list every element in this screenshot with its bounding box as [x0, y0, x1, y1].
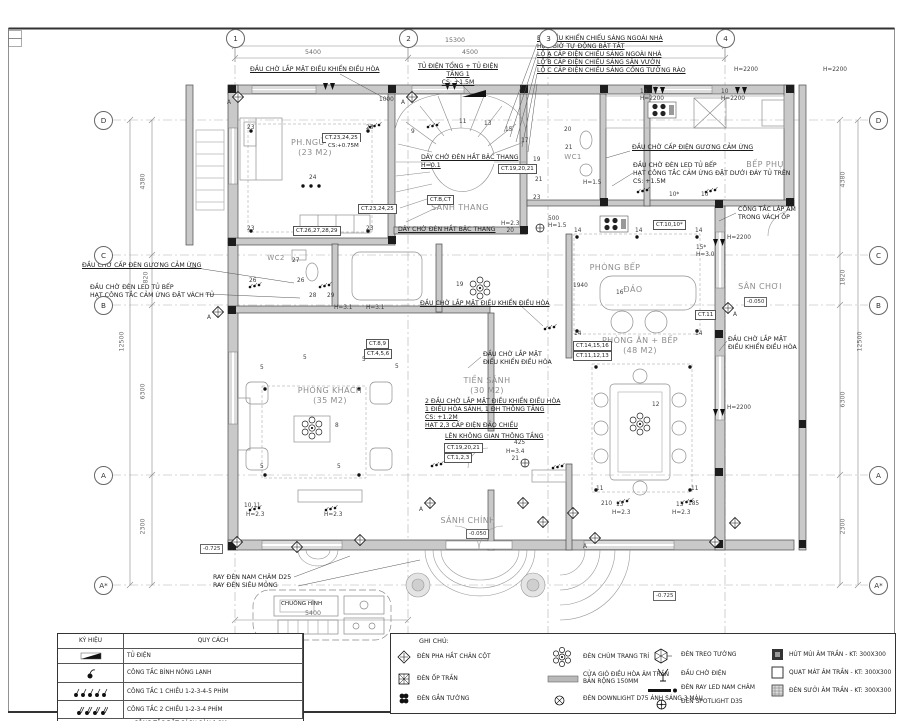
- plan-mark: 14: [635, 228, 642, 235]
- water-heater-switch-icon: [58, 664, 124, 682]
- plan-mark: 8: [335, 423, 339, 430]
- note-label: ĐÈN TREO TƯỜNG: [681, 652, 737, 659]
- room-label-main-hall: SẢNH CHÍNH: [418, 516, 518, 526]
- notes-legend: GHI CHÚ: ĐÈN PHA HẮT CHÂN CỘT ĐÈN ỐP TRẦ…: [390, 633, 896, 714]
- chandelier-icon: [630, 413, 650, 435]
- plan-mark: 5: [395, 364, 399, 371]
- room-label-foyer: TIỀN SẢNH (30 M2): [437, 376, 537, 397]
- plan-mark: A: [733, 312, 737, 319]
- plan-mark: 24: [309, 175, 316, 182]
- callout-stair-strip-bottom: DÂY CHỜ ĐÈN HẮT BẬC THANG: [398, 226, 496, 234]
- legend-header-spec: QUY CÁCH: [124, 634, 303, 648]
- wall-light-icon: [398, 692, 410, 706]
- plan-mark: 27: [292, 258, 299, 265]
- plan-mark: 16: [616, 290, 623, 297]
- dim-left: 6300: [140, 372, 147, 412]
- dim-bottom: 5400: [305, 610, 321, 617]
- plan-mark: 1940: [573, 283, 588, 290]
- plan-mark: 20: [564, 127, 571, 134]
- plan-mark: 13: [616, 502, 623, 509]
- plan-mark: 26: [297, 278, 304, 285]
- plan-mark: 10 H=2200: [640, 89, 664, 102]
- plan-mark: 11: [691, 486, 698, 493]
- level-marker: -0.050: [744, 297, 767, 307]
- plan-mark: H=2200: [727, 235, 751, 242]
- callout-void-up: LÊN KHÔNG GIAN THÔNG TẦNG: [445, 433, 544, 441]
- plan-mark: 19: [456, 282, 463, 289]
- plan-mark: 210: [601, 501, 612, 508]
- plan-mark: A: [207, 315, 211, 322]
- plan-mark: 23: [247, 125, 254, 132]
- floor-plan-drawing: [0, 0, 900, 721]
- plan-mark: 14: [574, 331, 581, 338]
- plan-mark: 5: [260, 365, 264, 372]
- callout-mirror-right: ĐẦU CHỜ CẤP ĐIỆN GƯƠNG CẢM ỨNG: [632, 144, 753, 152]
- plan-mark: 1000: [379, 97, 394, 104]
- plan-mark: 10: [701, 192, 708, 199]
- ct-box-sub: CS:+0.75M: [326, 142, 361, 150]
- grid-bubble-col-3: 3: [539, 29, 558, 48]
- dim-left: 2300: [140, 507, 147, 547]
- ct-box: CT.11: [695, 310, 716, 320]
- level-marker: -0.725: [200, 544, 223, 554]
- note-label: ĐÈN SPOTLIGHT D35: [681, 699, 743, 706]
- room-label-island: ĐẢO: [593, 285, 673, 295]
- grid-bubble-row-a-star: A*: [94, 576, 113, 595]
- note-label: ĐẦU CHỜ ĐIỆN: [681, 671, 726, 678]
- plan-mark: H=2.3: [324, 512, 342, 519]
- plan-mark: 19: [533, 157, 540, 164]
- plan-mark: H=2200: [734, 67, 758, 74]
- dim-right: 6300: [840, 380, 847, 420]
- note-label: ĐÈN CHÙM TRANG TRÍ: [583, 654, 649, 661]
- power-stub-icon: [656, 667, 670, 683]
- plan-mark: 21: [565, 145, 572, 152]
- plan-mark: 10*: [669, 192, 679, 199]
- plan-mark: 9: [411, 129, 415, 136]
- legend-header-symbol: KÝ HIỆU: [58, 634, 124, 648]
- plan-mark: 14: [574, 228, 581, 235]
- plan-mark: 23: [366, 226, 373, 233]
- plan-mark: 23: [247, 226, 254, 233]
- callout-foyer-block: 2 ĐẦU CHỜ LẮP MẶT ĐIỀU KHIỂN ĐIỀU HÒA 1 …: [425, 398, 560, 430]
- ct-box: CT.19,20,21: [498, 164, 537, 174]
- plan-mark: 10,11: [244, 503, 261, 510]
- downlight-icon: [553, 694, 566, 707]
- plan-mark: 11: [459, 119, 466, 126]
- switch-2way-icon: [58, 701, 124, 718]
- callout-doorbell: CHUÔNG HÌNH: [281, 601, 322, 608]
- chandelier-icon: [302, 417, 322, 439]
- dim-right: 12500: [857, 322, 864, 362]
- ct-box: CT.10,10*: [653, 220, 686, 230]
- plan-mark: H=2200: [823, 67, 847, 74]
- plan-mark: H=2200: [727, 405, 751, 412]
- callout-panel: TỦ ĐIỆN TỔNG + TỦ ĐIỆN TẦNG 1 CS: +1.5M: [413, 63, 503, 87]
- plan-mark: 12: [652, 402, 659, 409]
- plan-mark: H=3.1: [366, 305, 384, 312]
- chandelier-icon: [551, 646, 573, 668]
- plan-mark: 28: [309, 293, 316, 300]
- distribution-board-icon: [58, 649, 124, 663]
- dim-left: 4380: [140, 162, 147, 202]
- note-label: ĐÈN PHA HẮT CHÂN CỘT: [417, 654, 491, 661]
- note-label: QUẠT MÁT ÂM TRẦN - KT: 300X300: [789, 670, 891, 677]
- ct-box: CT.19,20,21: [444, 443, 483, 453]
- ct-box: CT.11,12,13: [573, 351, 612, 361]
- ceiling-light-icon: [397, 672, 411, 686]
- accent-light-icon: [397, 650, 411, 664]
- plan-mark: 14: [695, 228, 702, 235]
- plan-mark: 5: [337, 464, 341, 471]
- note-label: ĐÈN GẮN TƯỜNG: [417, 696, 469, 703]
- callout-ray-d25: RAY ĐÈN NAM CHÂM D25 RAY ĐÈN SIÊU MỎNG: [213, 574, 291, 590]
- plan-mark: 13: [676, 502, 683, 509]
- plan-mark: A: [227, 100, 231, 107]
- plan-mark: 26: [249, 278, 256, 285]
- grid-bubble-col-4: 4: [716, 29, 735, 48]
- legend-row-label: CÔNG TẮC 1 CHIỀU 1-2-3-4-5 PHÍM: [124, 683, 303, 700]
- level-marker: -0.050: [466, 529, 489, 539]
- drawing-sheet: 1 2 3 4 1 D C B A A* D C B A A* 15300 54…: [0, 0, 900, 721]
- cooling-fan-icon: [771, 666, 784, 679]
- grid-bubble-col-2: 2: [399, 29, 418, 48]
- spotlight-icon: [655, 698, 668, 711]
- room-label-stair-hall: SẢNH THANG: [410, 203, 510, 213]
- grid-bubble-row-d-right: D: [869, 111, 888, 130]
- plan-mark: H=3.1: [334, 305, 352, 312]
- plan-mark: 15: [505, 127, 512, 134]
- note-label: ĐÈN SƯỞI ÂM TRẦN - KT: 300X300: [789, 688, 891, 695]
- symbol-legend-table: KÝ HIỆU QUY CÁCH TỦ ĐIỆN CÔNG TẮC BÌNH N…: [57, 633, 304, 721]
- plan-mark: 14: [695, 331, 702, 338]
- grid-bubble-row-b-right: B: [869, 296, 888, 315]
- callout-ac-mid: ĐẦU CHỜ LẮP MẶT ĐIỀU KHIỂN ĐIỀU HÒA: [420, 300, 550, 308]
- sheet-frame: [8, 29, 895, 713]
- ct-box: CT.8,9: [366, 339, 389, 349]
- ct-box: CT.26,27,28,29: [293, 226, 341, 236]
- grid-bubble-row-a-star-right: A*: [869, 576, 888, 595]
- dim-top-seg: 4500: [462, 49, 478, 56]
- legend-row-label: CÔNG TẮC 2 CHIỀU 1-2-3-4 PHÍM: [124, 701, 303, 718]
- plan-mark: 185: [688, 501, 699, 508]
- plan-mark: 425: [514, 440, 525, 447]
- grid-bubble-row-c-right: C: [869, 246, 888, 265]
- grid-bubble-col-1: 1: [226, 29, 245, 48]
- plan-mark: A: [583, 544, 587, 551]
- grid-bubble-row-c: C: [94, 246, 113, 265]
- plan-mark: H=2.3 20: [501, 221, 519, 234]
- note-label: HÚT MÙI ÂM TRẦN - KT: 300X300: [789, 652, 886, 659]
- plan-mark: A: [419, 507, 423, 514]
- note-label: ĐÈN ỐP TRẦN: [417, 676, 458, 683]
- plan-mark: 500 H=1.5: [548, 216, 566, 229]
- plan-mark: H=2.3: [672, 510, 690, 517]
- dim-right: 2300: [840, 507, 847, 547]
- callout-ac-foyer: ĐẦU CHỜ LẮP MẶT ĐIỀU KHIỂN ĐIỀU HÒA: [483, 351, 552, 367]
- plan-mark: 29: [327, 293, 334, 300]
- callout-led-right: ĐẦU CHỜ ĐÈN LED TỦ BẾP HẠT CÔNG TẮC CẢM …: [633, 162, 790, 186]
- plan-mark: 23: [533, 195, 540, 202]
- plan-mark: 5: [303, 355, 307, 362]
- plan-mark: H=1.5: [583, 180, 601, 187]
- grid-bubble-row-b: B: [94, 296, 113, 315]
- callout-ac-top: ĐẦU CHỜ LẮP MẶT ĐIỀU KHIỂN ĐIỀU HÒA: [250, 66, 380, 74]
- exhaust-fan-icon: [771, 648, 784, 661]
- legend-row-label: TỦ ĐIỆN: [124, 649, 303, 663]
- plan-mark: 21: [535, 177, 542, 184]
- room-label-kitchen: PHÒNG BẾP: [575, 263, 655, 273]
- plan-mark: 15* H=3.0: [696, 245, 714, 258]
- grid-bubble-row-a-right: A: [869, 466, 888, 485]
- ct-box: CT.B,CT: [427, 195, 454, 205]
- note-label: ĐÈN RAY LED NAM CHÂM: [681, 685, 755, 692]
- wall-pendant-icon: [653, 648, 673, 664]
- switch-1way-icon: [58, 683, 124, 700]
- plan-mark: H=3.4 21: [506, 449, 524, 462]
- grid-bubble-row-d: D: [94, 111, 113, 130]
- ct-box: CT.4,5,6: [364, 349, 392, 359]
- plan-mark: A: [401, 100, 405, 107]
- plan-mark: 5: [260, 464, 264, 471]
- magnetic-track-icon: [647, 686, 679, 695]
- ct-box: CT.1,2,3: [444, 453, 472, 463]
- heat-lamp-icon: [771, 684, 784, 697]
- room-label-playground: SÂN CHƠI: [720, 282, 800, 292]
- callout-lighting-controller: BỘ ĐIỀU KHIỂN CHIẾU SÁNG NGOÀI NHÀ HẸN G…: [537, 35, 686, 75]
- dim-left: 12500: [119, 322, 126, 362]
- ac-vent-icon: [547, 674, 579, 684]
- plan-mark: H=2.3: [246, 512, 264, 519]
- grid-bubble-row-a: A: [94, 466, 113, 485]
- notes-title: GHI CHÚ:: [419, 637, 449, 645]
- room-label-wc2: WC2: [256, 254, 296, 263]
- plan-mark: H=2.3: [612, 510, 630, 517]
- callout-ac-right: ĐẦU CHỜ LẮP MẶT ĐIỀU KHIỂN ĐIỀU HÒA: [728, 336, 797, 352]
- room-label-living: PHÒNG KHÁCH (35 M2): [280, 386, 380, 407]
- plan-mark: 17: [521, 138, 528, 145]
- callout-flush-switch: CÔNG TẮC LẬP ÂM TRONG VÁCH ỐP: [738, 206, 796, 222]
- plan-mark: 10 H=2200: [721, 89, 745, 102]
- ct-box: CT.14,15,16: [573, 341, 612, 351]
- legend-row-label: CÔNG TẮC BÌNH NÓNG LẠNH: [124, 664, 303, 682]
- plan-mark: 13: [484, 121, 491, 128]
- dim-top-total: 15300: [445, 37, 465, 44]
- dim-right: 1820: [840, 258, 847, 298]
- chandelier-icon: [470, 277, 490, 299]
- ct-box: CT.23,24,25: [358, 204, 397, 214]
- room-label-wc1: WC1: [553, 153, 593, 162]
- plan-mark: 23: [366, 125, 373, 132]
- dim-top-seg: 5400: [305, 49, 321, 56]
- plan-mark: 11: [596, 486, 603, 493]
- level-marker: -0.725: [653, 591, 676, 601]
- dim-right: 4380: [840, 160, 847, 200]
